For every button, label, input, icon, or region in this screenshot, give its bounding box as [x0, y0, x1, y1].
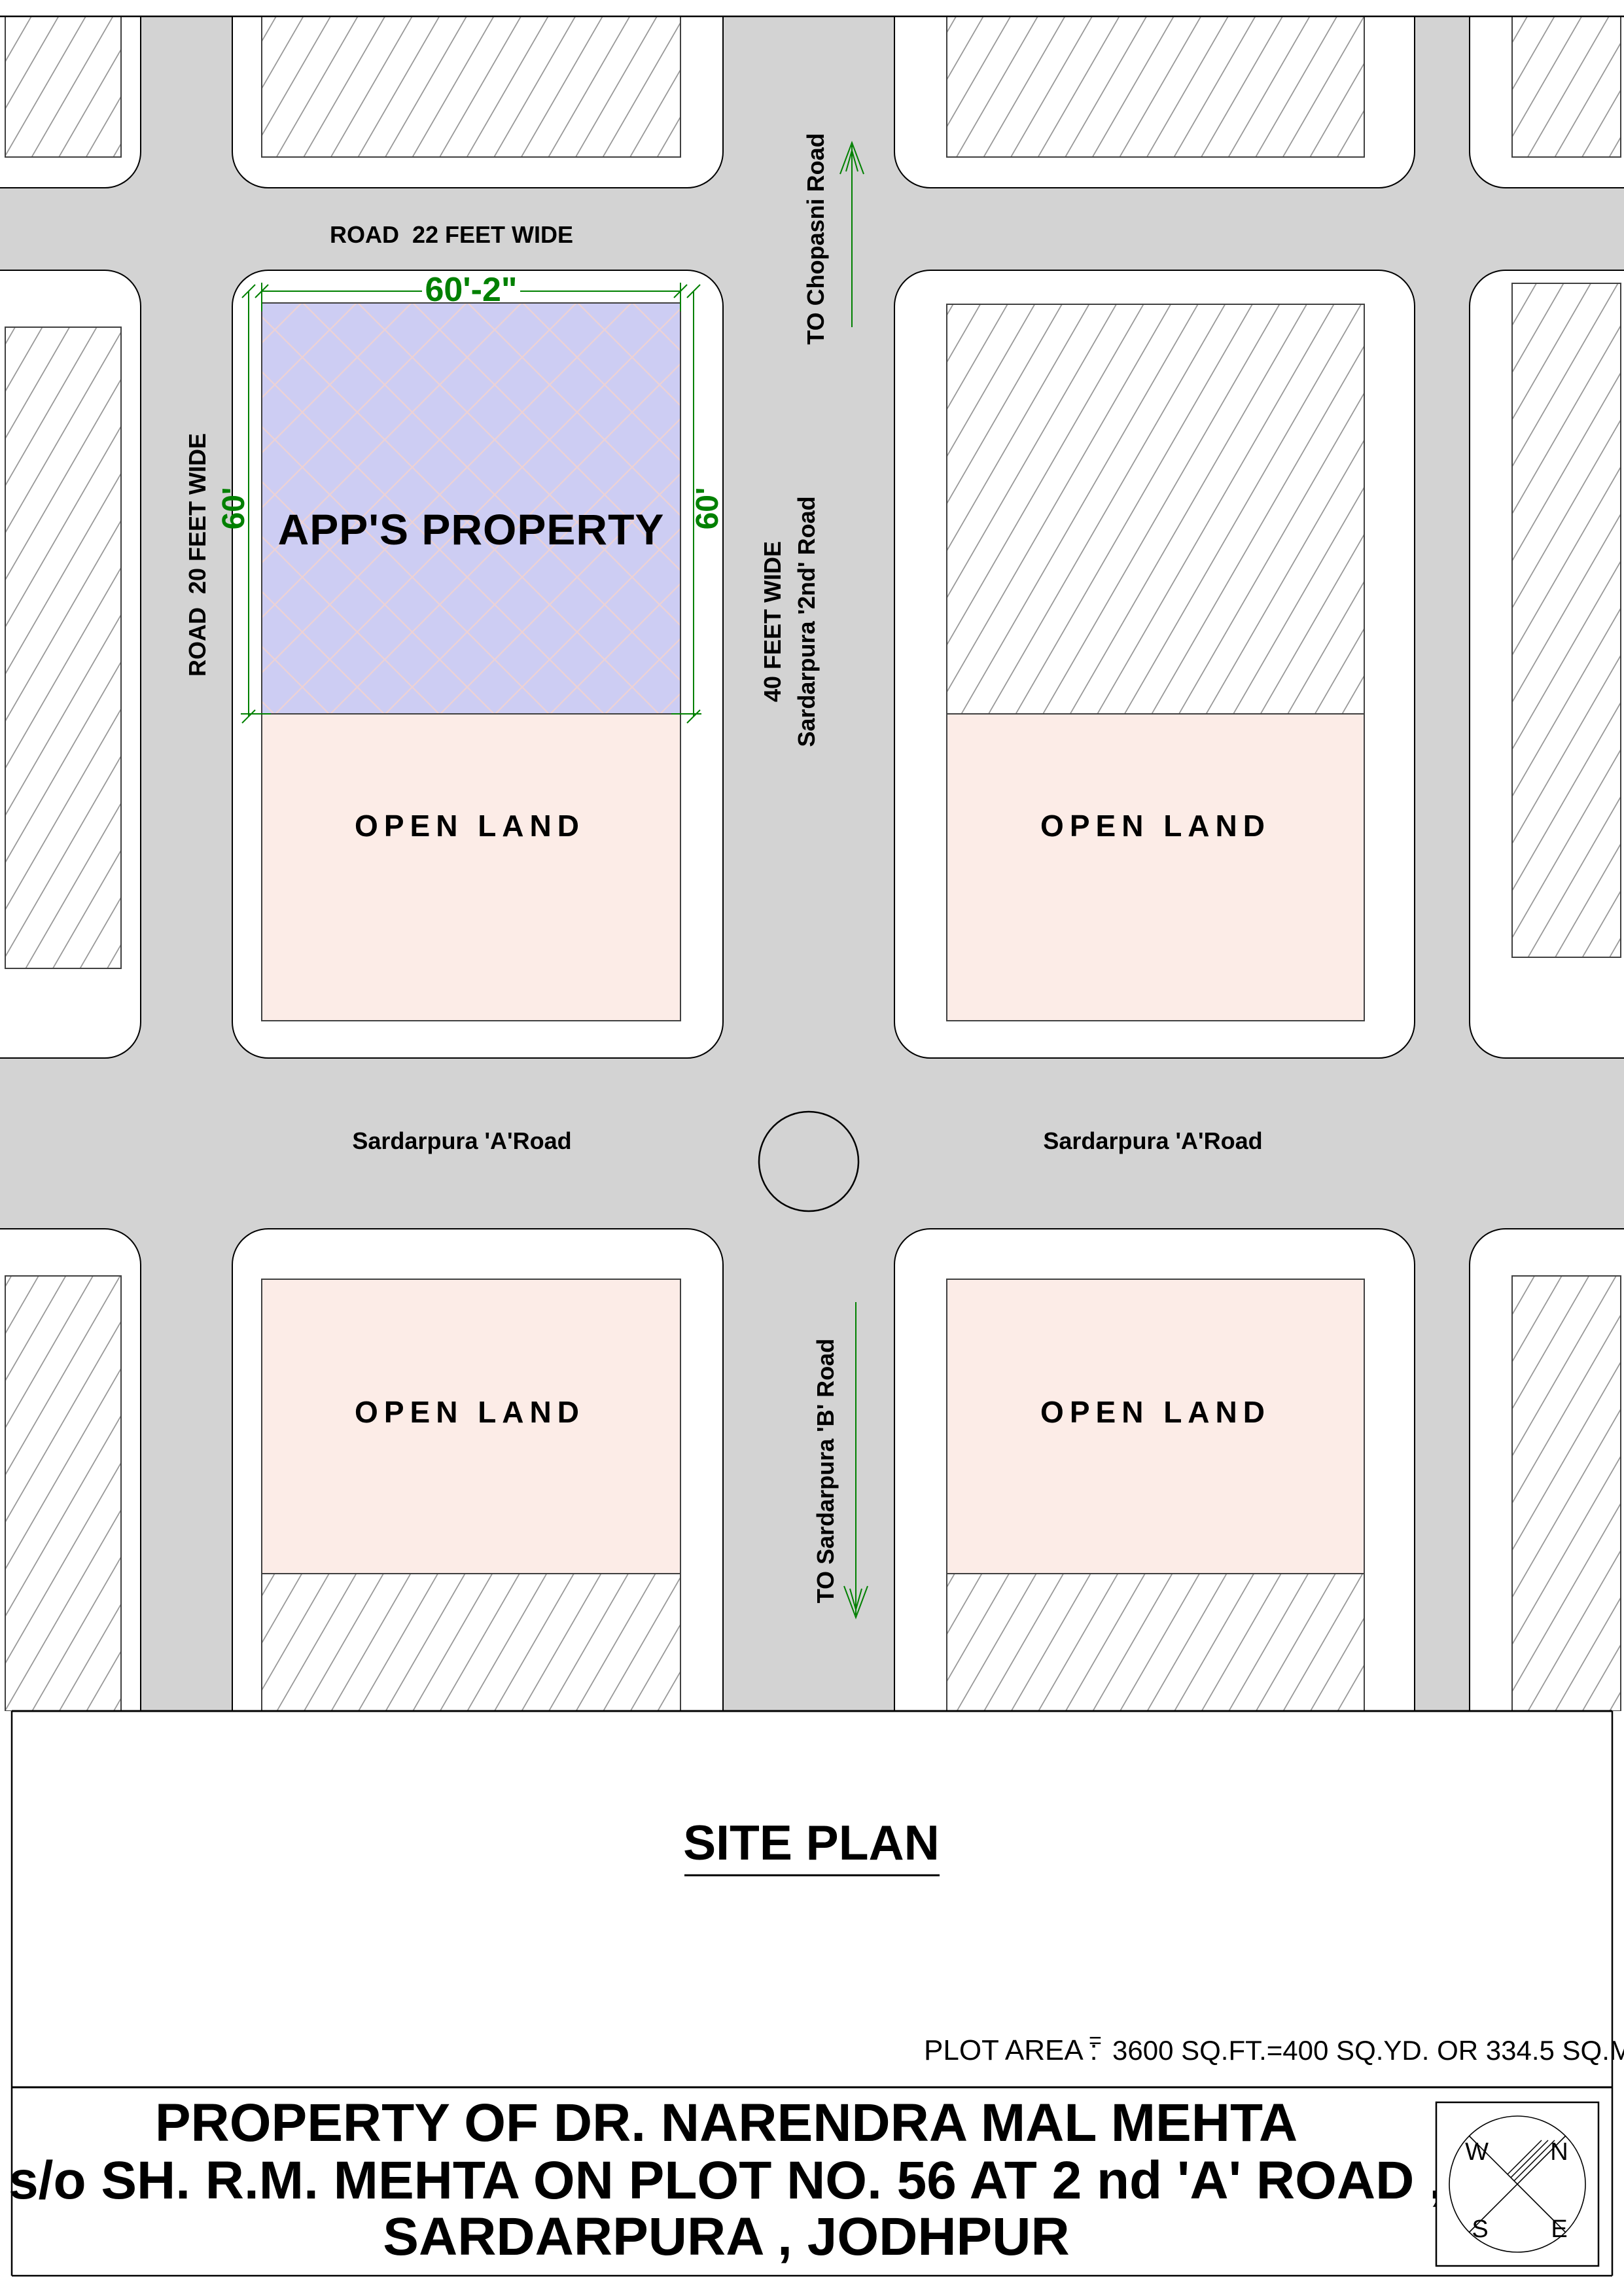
- hatch-r1-mid: [262, 16, 680, 157]
- hatch-r1-far-right: [1512, 16, 1621, 157]
- to-chopasni-label: TO Chopasni Road: [802, 133, 829, 344]
- top-margin: [0, 0, 1624, 16]
- a-road-east-label: Sardarpura 'A'Road: [1043, 1127, 1262, 1154]
- open-land-label-south-west: OPEN LAND: [355, 1395, 585, 1429]
- plot-area-value: 3600 SQ.FT.=400 SQ.YD. OR 334.5 SQ.MT.: [1112, 2035, 1624, 2066]
- open-land-label-south-east: OPEN LAND: [1040, 1395, 1271, 1429]
- site-plan-drawing: ROAD 22 FEET WIDE ROAD 20 FEET WIDE 40 F…: [0, 0, 1624, 2296]
- dimension-right: 60': [690, 487, 725, 530]
- road-22ft-label: ROAD 22 FEET WIDE: [330, 221, 573, 248]
- hatch-r2-far-left: [5, 327, 121, 968]
- owner-line1: PROPERTY OF DR. NARENDRA MAL MEHTA: [155, 2093, 1297, 2153]
- hatch-r1-far-left: [5, 16, 121, 157]
- hatch-r3-right: [947, 1574, 1364, 1711]
- compass-rose: W N S E: [1436, 2102, 1598, 2266]
- property-label: APP'S PROPERTY: [278, 505, 665, 554]
- hatch-r3-far-right: [1512, 1276, 1621, 1711]
- hatch-r3-mid: [262, 1574, 680, 1711]
- site-plan-page: ROAD 22 FEET WIDE ROAD 20 FEET WIDE 40 F…: [0, 0, 1624, 2296]
- compass-west-label: W: [1465, 2138, 1489, 2166]
- dimension-left: 60': [217, 487, 251, 530]
- site-plan-title: SITE PLAN: [683, 1815, 940, 1870]
- plot-area-label: PLOT AREA :: [924, 2034, 1098, 2066]
- compass-east-label: E: [1551, 2216, 1567, 2243]
- open-land-label-west: OPEN LAND: [355, 809, 585, 843]
- plot-area-equals: =: [1089, 2028, 1102, 2053]
- hatch-r2-right: [947, 304, 1364, 714]
- hatch-r2-far-right: [1512, 283, 1621, 957]
- open-land-west: [262, 714, 680, 1021]
- compass-south-label: S: [1472, 2216, 1488, 2243]
- owner-line3: SARDARPURA , JODHPUR: [383, 2207, 1069, 2267]
- road-20ft-label: ROAD 20 FEET WIDE: [184, 433, 211, 677]
- hatch-r1-right: [947, 16, 1364, 157]
- open-land-label-east: OPEN LAND: [1040, 809, 1271, 843]
- dimension-top: 60'-2": [425, 271, 517, 309]
- owner-line2: s/o SH. R.M. MEHTA ON PLOT NO. 56 AT 2 n…: [9, 2151, 1444, 2210]
- compass-north-label: N: [1550, 2138, 1568, 2166]
- road-2nd-name-label: Sardarpura '2nd' Road: [793, 496, 820, 747]
- road-40ft-width-label: 40 FEET WIDE: [759, 541, 786, 702]
- to-sardarpura-b-label: TO Sardarpura 'B' Road: [812, 1339, 839, 1604]
- open-land-east: [947, 714, 1364, 1021]
- hatch-r3-far-left: [5, 1276, 121, 1711]
- a-road-west-label: Sardarpura 'A'Road: [352, 1127, 571, 1154]
